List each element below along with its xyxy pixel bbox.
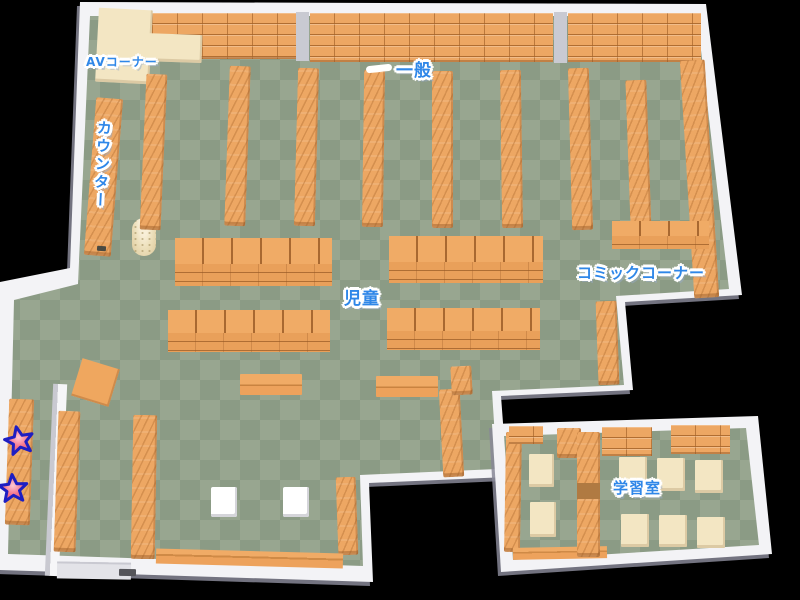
area-label-general: 一般 bbox=[396, 56, 432, 81]
wall-bookshelf bbox=[568, 13, 701, 62]
study-desk bbox=[657, 458, 685, 491]
area-label-study-room: 学習室 bbox=[613, 477, 661, 498]
study-desk bbox=[695, 460, 723, 493]
library-floor-map: AVコーナー カウンター 一般 児童 コミックコーナー 学習室 bbox=[0, 0, 800, 600]
comic-low-bookshelf bbox=[612, 221, 709, 249]
low-bookshelf bbox=[175, 238, 332, 286]
bookshelf bbox=[432, 71, 453, 228]
study-desk bbox=[530, 502, 556, 537]
reading-bench bbox=[240, 374, 302, 395]
bookshelf bbox=[596, 301, 620, 386]
study-desk bbox=[529, 454, 554, 487]
bookshelf bbox=[294, 68, 319, 226]
kiosk-box bbox=[211, 487, 237, 517]
star-icon bbox=[0, 421, 38, 459]
low-bookshelf bbox=[168, 310, 330, 352]
wall-bookshelf bbox=[310, 13, 553, 62]
star-icon bbox=[0, 471, 30, 505]
bookshelf bbox=[362, 70, 385, 227]
counter-item bbox=[97, 246, 106, 252]
reading-bench bbox=[376, 376, 438, 397]
bookshelf bbox=[336, 477, 359, 556]
kiosk-box bbox=[283, 487, 309, 517]
study-desk bbox=[621, 514, 649, 547]
study-bookshelf bbox=[509, 426, 543, 444]
bookshelf-with-markers bbox=[5, 399, 34, 526]
study-desk bbox=[697, 517, 725, 548]
bookshelf bbox=[131, 415, 158, 559]
low-bookshelf bbox=[389, 236, 543, 283]
study-divider-gap bbox=[577, 483, 600, 499]
low-bookshelf bbox=[387, 308, 540, 350]
corner-shelf bbox=[450, 365, 472, 395]
study-bookshelf bbox=[671, 425, 730, 454]
study-desk bbox=[659, 515, 687, 547]
area-label-comic-corner: コミックコーナー bbox=[577, 262, 705, 283]
wall-pillar bbox=[554, 12, 567, 63]
area-label-av-corner: AVコーナー bbox=[86, 53, 158, 70]
bookshelf bbox=[500, 70, 523, 228]
area-label-children: 児童 bbox=[344, 284, 380, 309]
study-bookshelf bbox=[504, 432, 522, 552]
door-handle-icon bbox=[119, 569, 136, 576]
bookshelf bbox=[568, 68, 593, 230]
study-bookshelf bbox=[602, 427, 652, 456]
wall-pillar bbox=[296, 12, 309, 61]
